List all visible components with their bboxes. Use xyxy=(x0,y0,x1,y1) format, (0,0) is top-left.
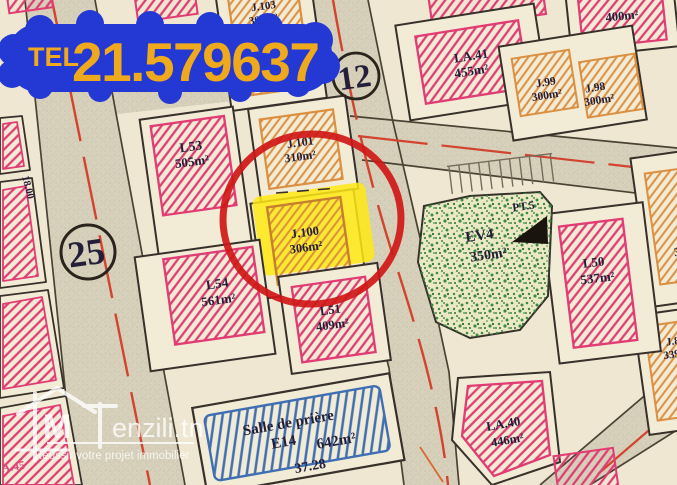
watermark-tagline: Réussir votre projet immobilier xyxy=(34,450,189,462)
green-space-ev4: EV4 350m² PT.5 xyxy=(418,192,552,338)
plot-l54: L54 561m² xyxy=(135,240,276,371)
watermark-brand: enzili.tn xyxy=(112,413,204,443)
cadastral-map: 18.00 J.103 300m² 400m² LA.41 455m² J.99… xyxy=(0,0,677,485)
plot-right-low-name: J.8 xyxy=(665,335,677,349)
plot-l54-name: L54 xyxy=(205,275,230,293)
plot-j99-j98: J.99 300m² J.98 300m² xyxy=(499,26,647,141)
road-number-25: 25 xyxy=(65,231,107,277)
listing-image: 18.00 J.103 300m² 400m² LA.41 455m² J.99… xyxy=(0,0,677,485)
plot-right-low-area: 339 xyxy=(663,348,677,362)
phone-overlay: TEL 21.579637 xyxy=(0,10,340,104)
road-number-12: 12 xyxy=(336,58,374,98)
plot-l50-name: L50 xyxy=(582,253,605,271)
logo-letter: M xyxy=(43,408,71,446)
phone-number: 21.579637 xyxy=(72,31,319,93)
plot-l50: L50 537m² xyxy=(541,202,661,363)
